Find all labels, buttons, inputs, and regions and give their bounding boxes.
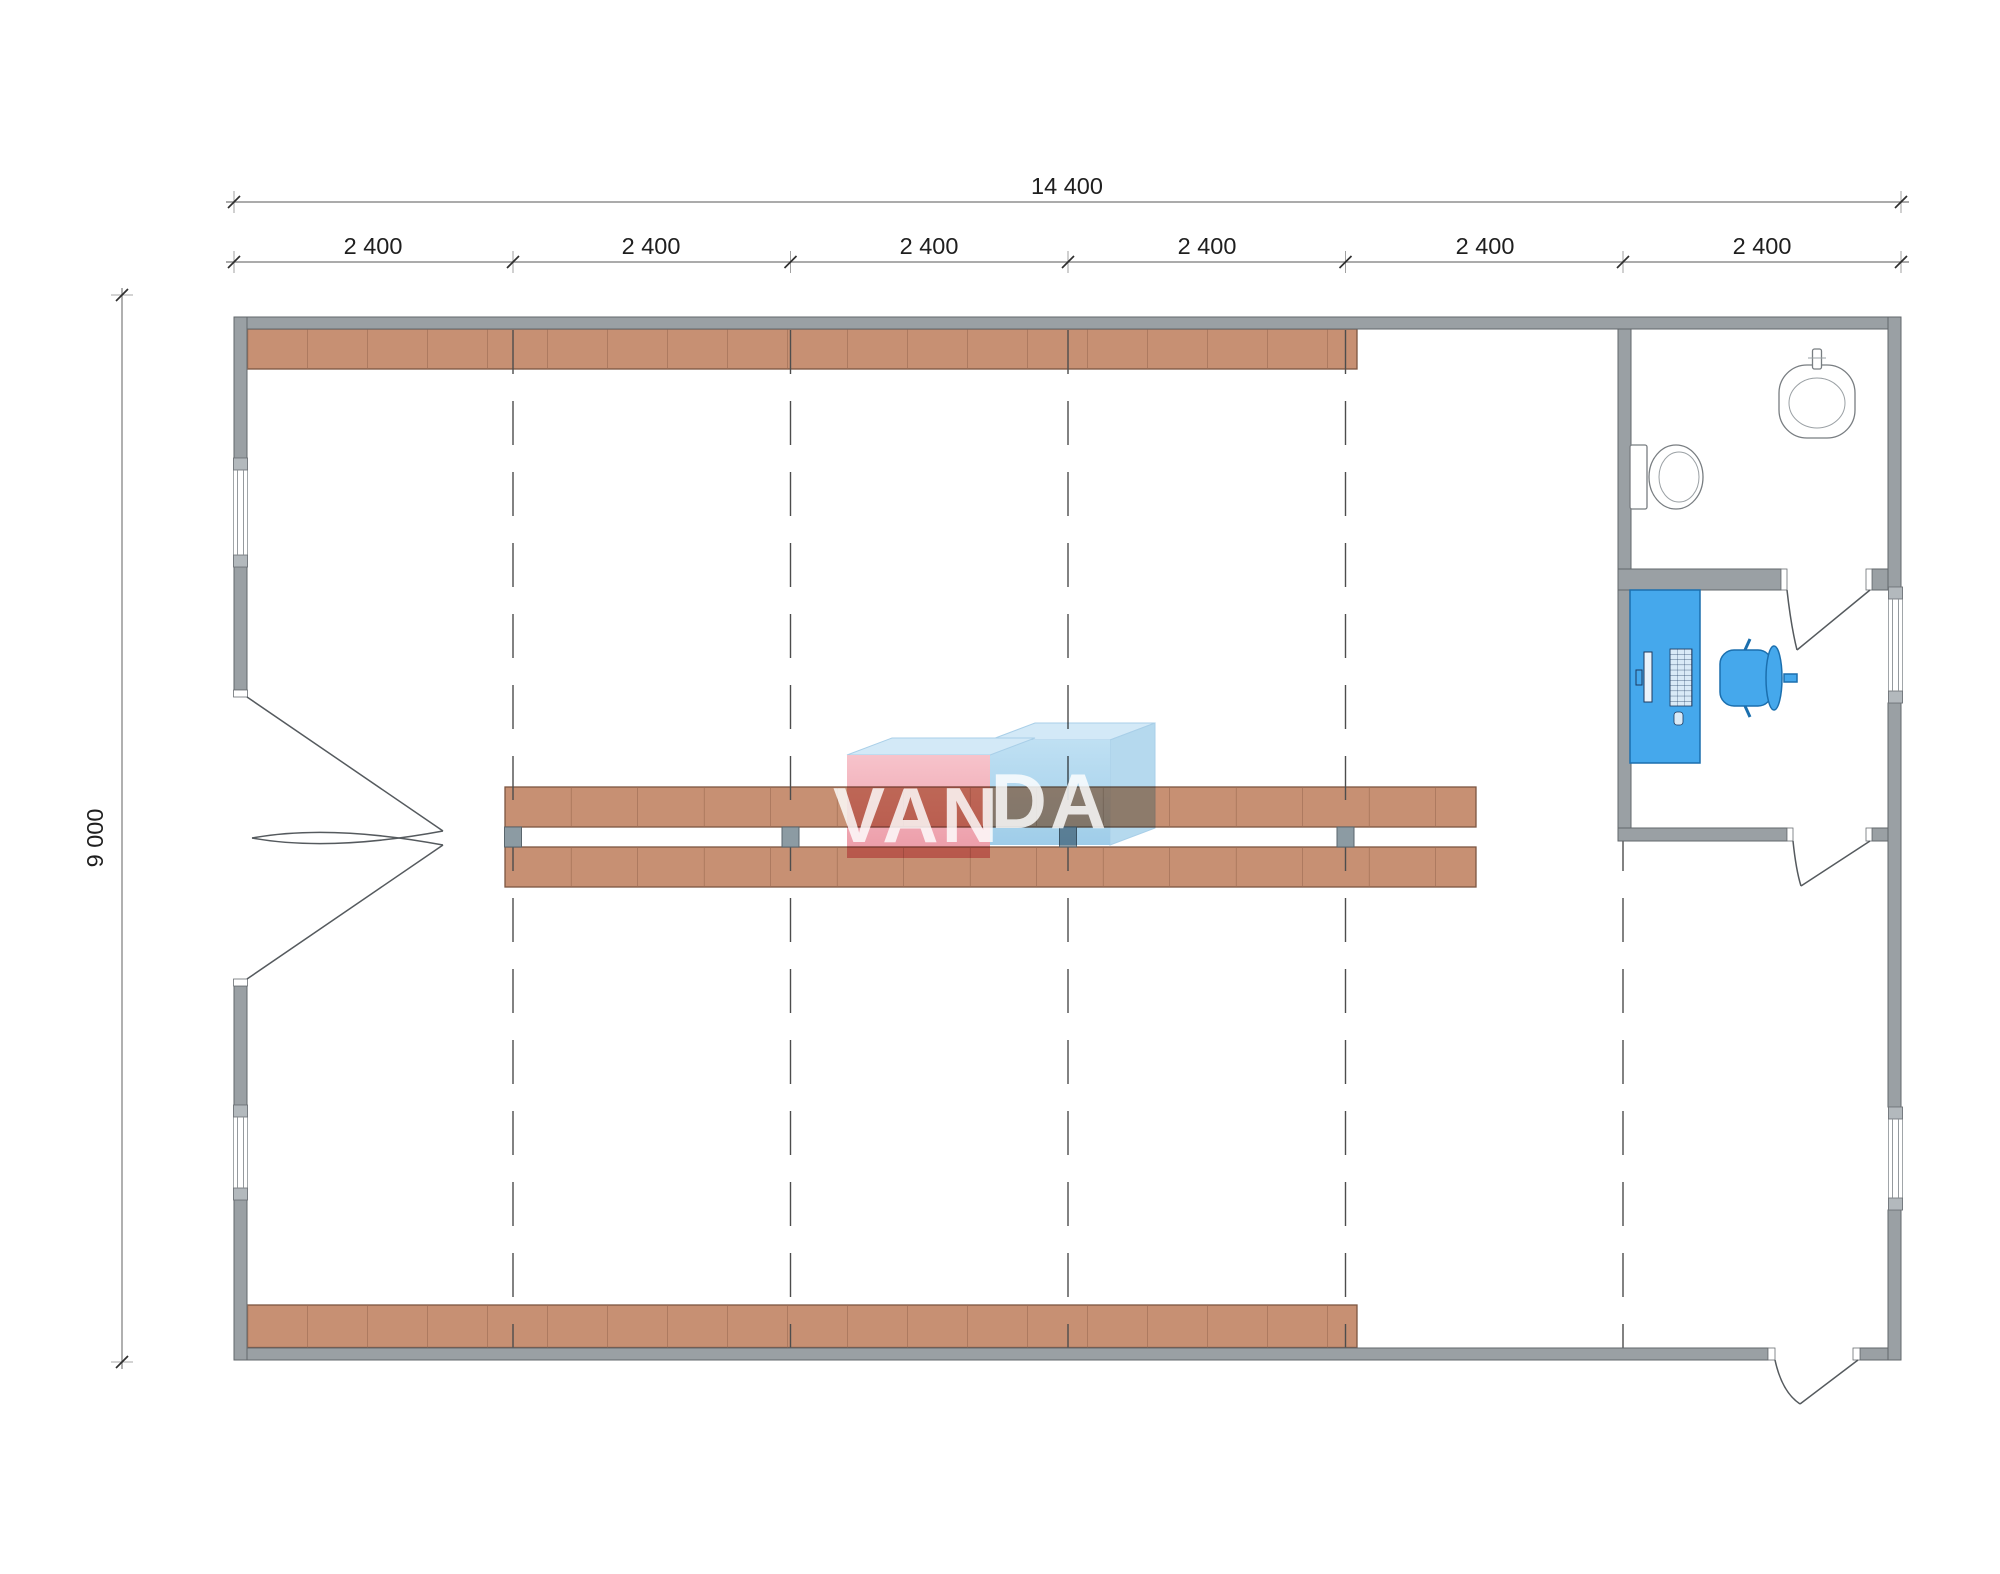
office-partition-wall <box>1618 828 1787 841</box>
faucet <box>1813 349 1822 369</box>
left-wall <box>234 567 247 690</box>
total-width-label: 14 400 <box>1031 173 1103 199</box>
bathroom-door <box>1781 569 1872 650</box>
right-wall <box>1888 1210 1901 1360</box>
right-wall <box>1888 703 1901 1107</box>
bathroom-partition-wall <box>1872 569 1888 590</box>
bay-label: 2 400 <box>344 233 403 259</box>
vanda-watermark: VAN DA <box>833 723 1155 859</box>
shelf-run-top <box>248 329 1358 369</box>
left-wall <box>234 986 247 1105</box>
chair-backrest <box>1766 646 1782 710</box>
keyboard <box>1670 649 1692 706</box>
exterior-door <box>1768 1348 1860 1404</box>
bay-label: 2 400 <box>1456 233 1515 259</box>
window-right-hall <box>1889 1107 1903 1210</box>
mouse <box>1674 712 1683 725</box>
left-wall <box>234 1200 247 1360</box>
height-label: 9 000 <box>82 809 108 868</box>
bay-label: 2 400 <box>622 233 681 259</box>
height-dimension: 9 000 <box>82 288 133 1369</box>
window-right-office <box>1889 587 1903 703</box>
sink <box>1779 349 1855 438</box>
top-wall <box>234 317 1901 329</box>
bottom-wall <box>234 1348 1768 1360</box>
floor-plan-drawing: VAN DA 14 400 2 400 2 400 2 400 2 400 2 … <box>0 0 2000 1574</box>
watermark-text-right: DA <box>991 757 1110 845</box>
bay-label: 2 400 <box>1733 233 1792 259</box>
window-left-lower <box>234 1105 248 1200</box>
shelf-post <box>1337 827 1354 847</box>
office-door <box>1787 828 1872 886</box>
floor-plan-canvas: VAN DA 14 400 2 400 2 400 2 400 2 400 2 … <box>0 0 2000 1574</box>
desk <box>1630 590 1700 763</box>
total-width-dimension: 14 400 <box>226 173 1909 213</box>
right-wall <box>1888 317 1901 587</box>
bay-label: 2 400 <box>900 233 959 259</box>
shelf-run-bottom <box>248 1305 1358 1348</box>
chair-armrest <box>1784 674 1797 682</box>
office-chair <box>1720 639 1797 717</box>
bathroom-partition-wall <box>1618 569 1781 590</box>
window-left-upper <box>234 458 248 567</box>
toilet <box>1630 445 1703 509</box>
bay-dimension-row: 2 400 2 400 2 400 2 400 2 400 2 400 <box>226 233 1909 273</box>
office-partition-wall <box>1872 828 1888 841</box>
shelf-post <box>782 827 799 847</box>
bay-label: 2 400 <box>1178 233 1237 259</box>
left-wall <box>234 317 247 458</box>
entry-double-door <box>234 690 444 986</box>
shelf-post <box>505 827 522 847</box>
watermark-text-left: VAN <box>833 771 1001 859</box>
computer-monitor <box>1644 652 1652 702</box>
